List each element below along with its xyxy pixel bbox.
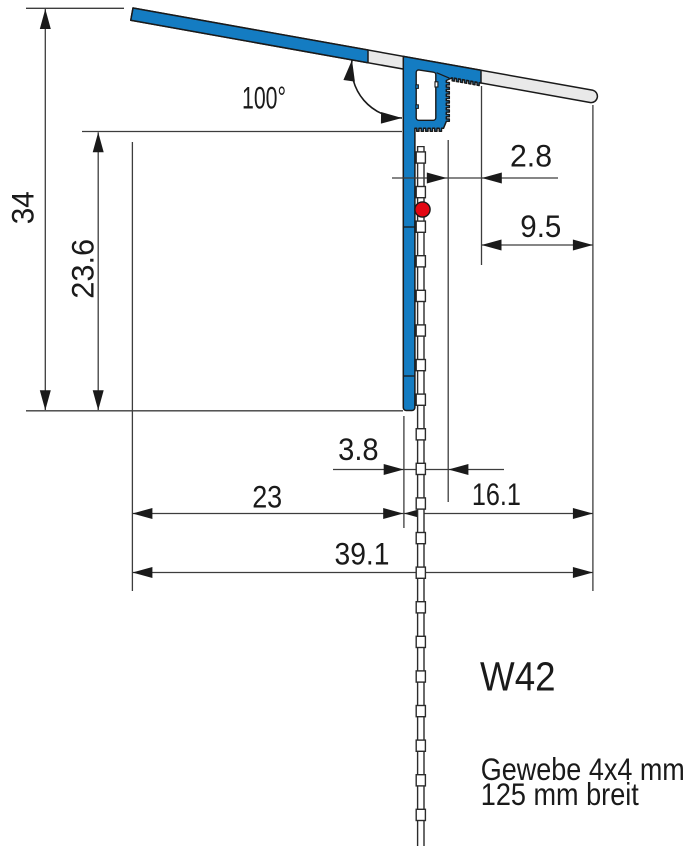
svg-text:100°: 100° xyxy=(242,80,286,116)
svg-text:W42: W42 xyxy=(480,654,556,700)
svg-text:23.6: 23.6 xyxy=(65,239,101,299)
svg-text:39.1: 39.1 xyxy=(335,536,390,572)
svg-text:125 mm breit: 125 mm breit xyxy=(481,776,639,812)
svg-text:34: 34 xyxy=(4,191,40,224)
svg-text:23: 23 xyxy=(252,479,282,515)
svg-text:2.8: 2.8 xyxy=(510,138,552,174)
svg-text:3.8: 3.8 xyxy=(338,431,379,467)
svg-text:16.1: 16.1 xyxy=(472,476,521,512)
svg-text:9.5: 9.5 xyxy=(520,208,561,244)
